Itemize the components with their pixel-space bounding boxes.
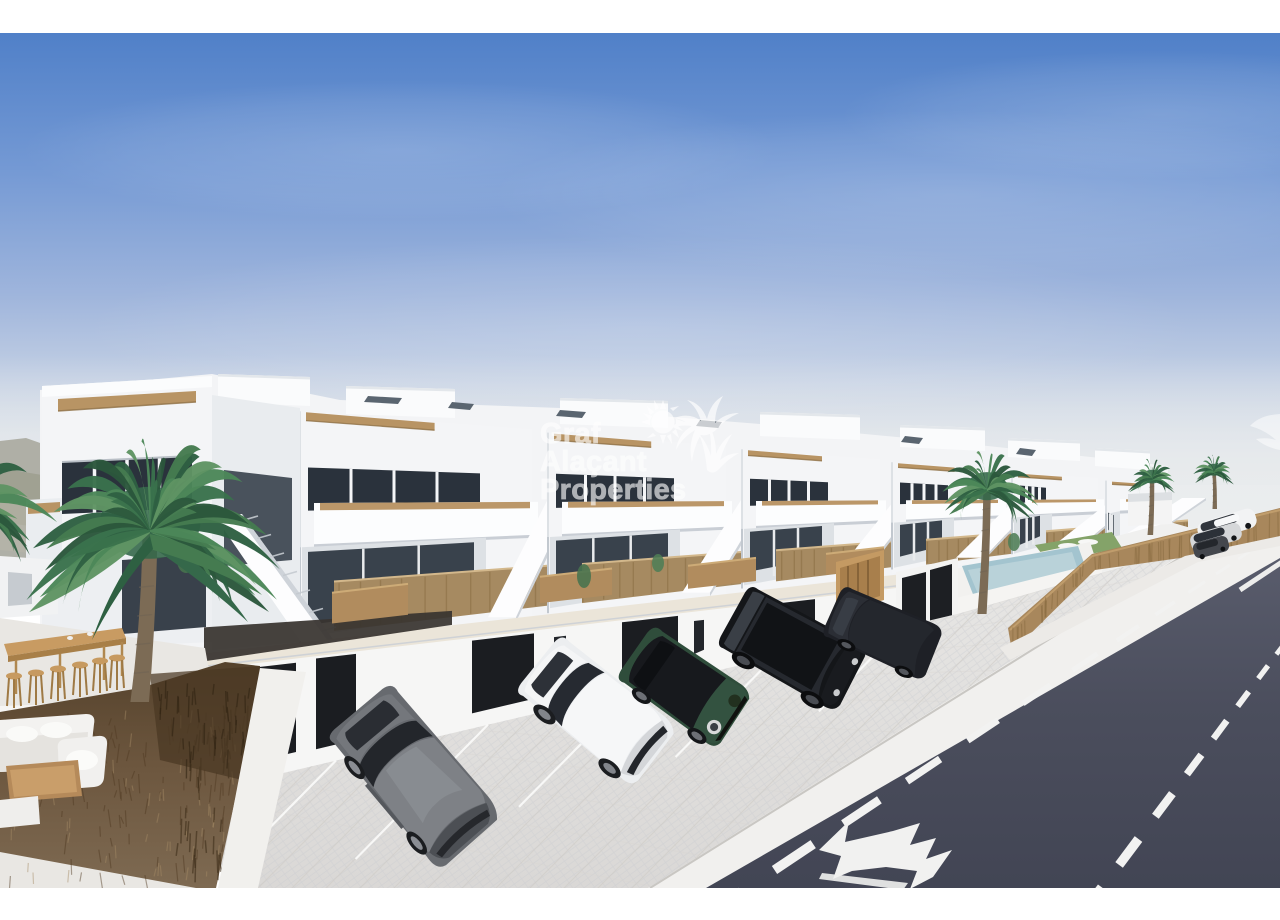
svg-text:Properties: Properties xyxy=(540,474,686,506)
